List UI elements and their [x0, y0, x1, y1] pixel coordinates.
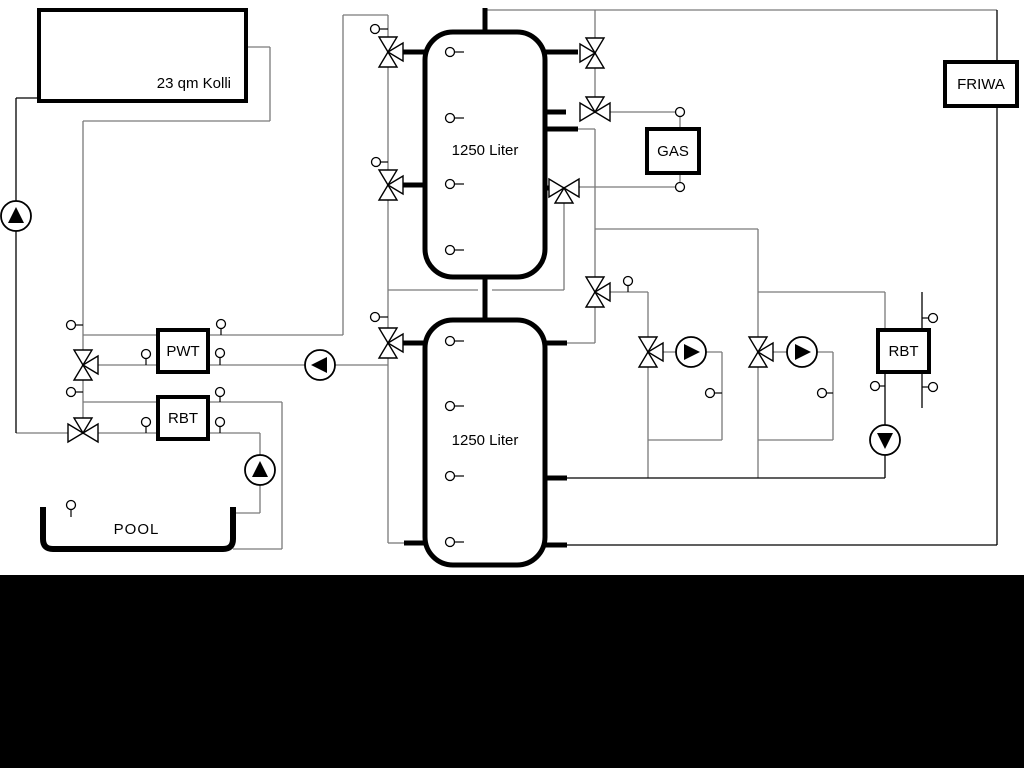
gas-boiler-label: GAS	[657, 143, 689, 160]
temperature-sensor-icon	[371, 313, 389, 322]
temperature-sensor-icon	[67, 321, 84, 330]
hydraulic-diagram-canvas: 23 qm Kolli GAS FRIWA PWT RBT RBT 1250 L…	[0, 0, 1024, 768]
pump-icon	[676, 337, 706, 367]
three-way-valve-icon	[586, 277, 610, 307]
temperature-sensor-icon	[142, 350, 151, 366]
temperature-sensor-icon	[67, 501, 76, 518]
temperature-sensor-icon	[216, 349, 225, 366]
temperature-sensor-icon	[676, 183, 685, 192]
temperature-sensor-icon	[706, 389, 723, 398]
three-way-valve-icon	[580, 38, 604, 68]
gas-boiler-box: GAS	[645, 127, 701, 175]
three-way-valve-icon	[639, 337, 663, 367]
three-way-valve-icon	[379, 328, 403, 358]
buffer-tank-top	[425, 32, 545, 277]
rbt-left-label: RBT	[168, 410, 198, 427]
temperature-sensor-icon	[216, 388, 225, 403]
friwa-station-box: FRIWA	[943, 60, 1019, 108]
solar-collector-box: 23 qm Kolli	[37, 8, 248, 103]
friwa-station-label: FRIWA	[957, 76, 1005, 93]
three-way-valve-icon	[74, 350, 98, 380]
temperature-sensor-icon	[922, 314, 938, 323]
three-way-valve-icon	[749, 337, 773, 367]
pump-icon	[305, 350, 335, 380]
three-way-valve-icon	[549, 179, 579, 203]
temperature-sensor-icon	[922, 383, 938, 392]
solar-collector-label: 23 qm Kolli	[157, 75, 231, 92]
temperature-sensor-icon	[676, 108, 685, 117]
pwt-heat-exchanger-box: PWT	[156, 328, 210, 374]
three-way-valve-icon	[68, 418, 98, 442]
three-way-valve-icon	[379, 37, 403, 67]
pump-icon	[1, 201, 31, 231]
rbt-left-box: RBT	[156, 395, 210, 441]
temperature-sensor-icon	[67, 388, 84, 397]
temperature-sensor-icon	[372, 158, 389, 167]
temperature-sensor-icon	[818, 389, 834, 398]
temperature-sensor-icon	[371, 25, 389, 34]
pump-icon	[870, 425, 900, 455]
temperature-sensor-icon	[217, 320, 226, 336]
temperature-sensor-icon	[624, 277, 633, 293]
pump-icon	[245, 455, 275, 485]
bottom-black-bar	[0, 575, 1024, 768]
pwt-heat-exchanger-label: PWT	[166, 343, 199, 360]
temperature-sensor-icon	[142, 418, 151, 434]
buffer-tank-bottom	[425, 320, 545, 565]
temperature-sensor-icon	[216, 418, 225, 434]
three-way-valve-icon	[580, 97, 610, 121]
rbt-right-box: RBT	[876, 328, 931, 374]
temperature-sensor-icon	[871, 382, 886, 391]
three-way-valve-icon	[379, 170, 403, 200]
rbt-right-label: RBT	[889, 343, 919, 360]
pump-icon	[787, 337, 817, 367]
